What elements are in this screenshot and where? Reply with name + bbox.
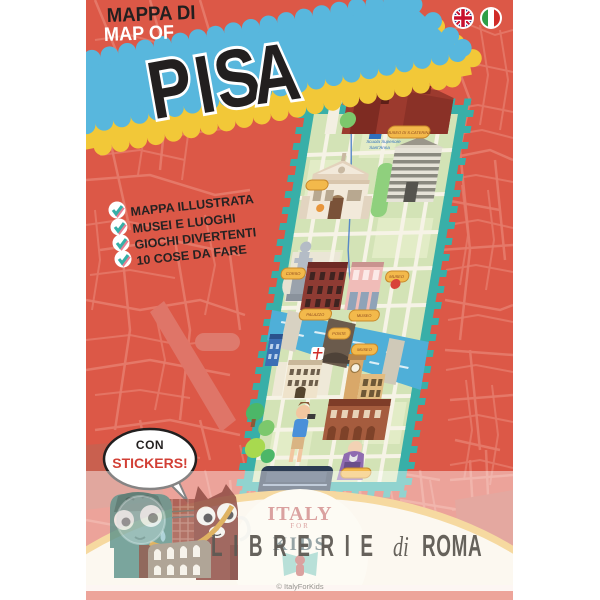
svg-text:STICKERS!: STICKERS!: [112, 455, 187, 471]
svg-text:CON: CON: [136, 438, 164, 452]
svg-text:di: di: [393, 532, 409, 563]
svg-text:MUSEO: MUSEO: [356, 313, 371, 318]
svg-text:LIBRERIE: LIBRERIE: [211, 530, 384, 564]
svg-text:Sant'Anna: Sant'Anna: [369, 145, 391, 150]
svg-text:MUSEO: MUSEO: [389, 274, 404, 279]
svg-text:CORSO: CORSO: [285, 271, 300, 276]
svg-text:PONTE: PONTE: [332, 331, 347, 336]
svg-text:PALAZZO: PALAZZO: [306, 312, 325, 317]
svg-text:ROMA: ROMA: [422, 530, 482, 564]
svg-text:© ItalyForKids: © ItalyForKids: [276, 582, 323, 591]
svg-text:MUSEO: MUSEO: [357, 347, 372, 352]
svg-text:MAP OF: MAP OF: [104, 21, 175, 45]
svg-text:MUSEO DI S.CATERINA: MUSEO DI S.CATERINA: [386, 130, 432, 135]
svg-text:Scuola Superiore: Scuola Superiore: [366, 139, 402, 144]
